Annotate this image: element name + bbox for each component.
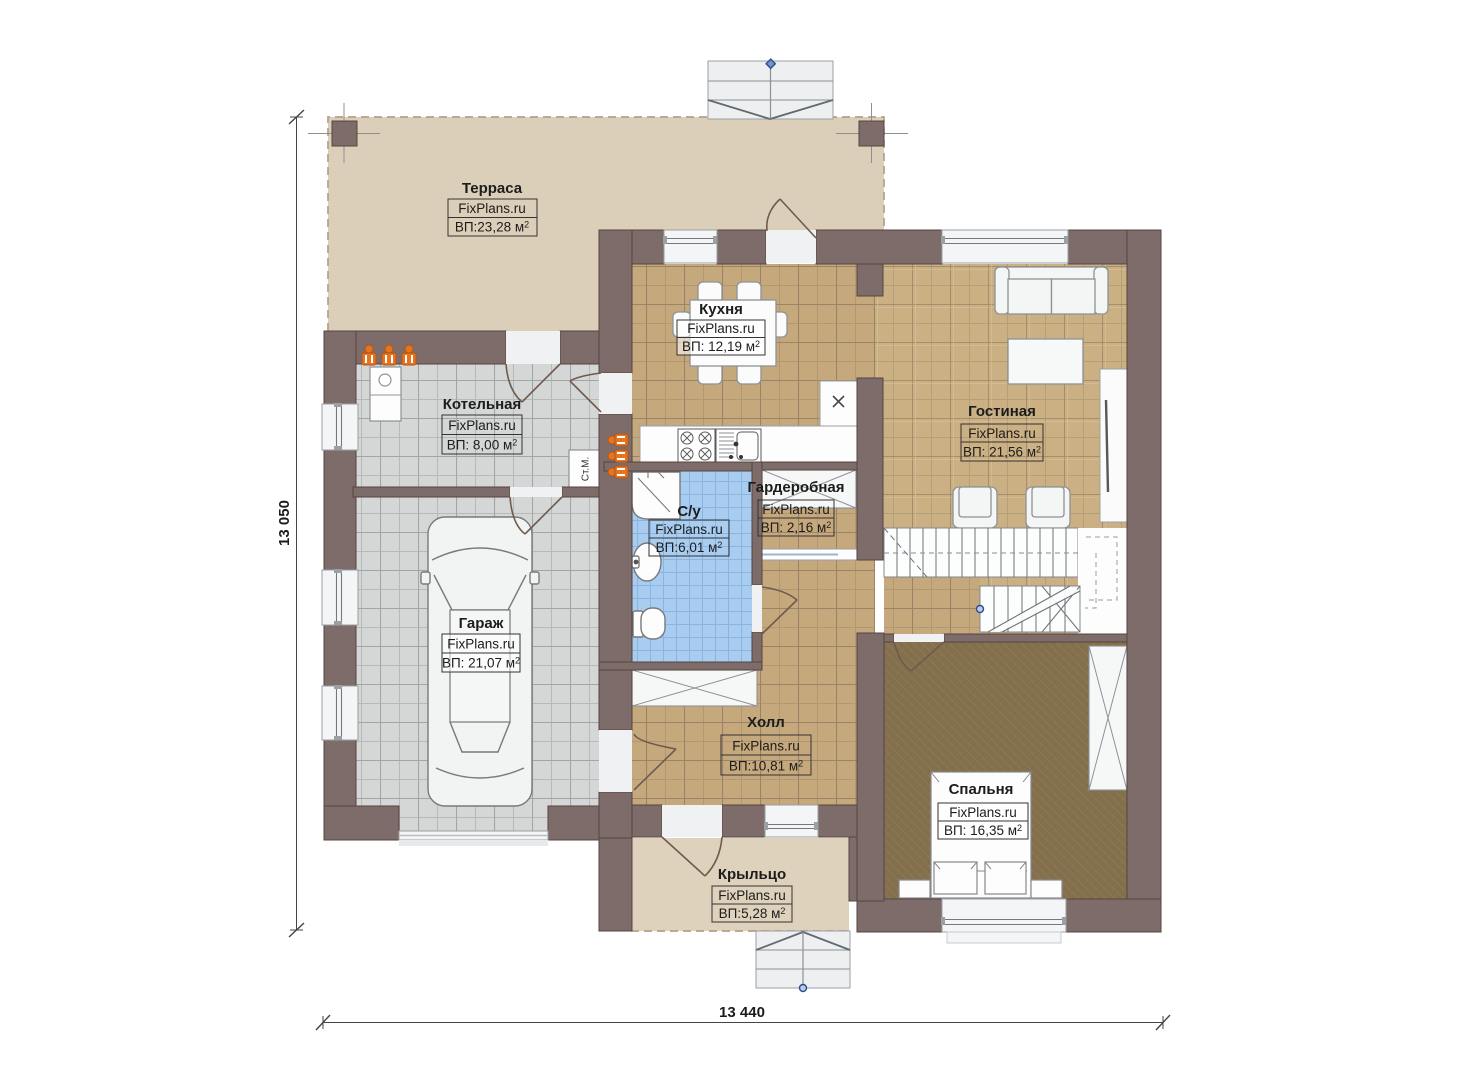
svg-text:Терраса: Терраса	[462, 180, 523, 197]
svg-text:ВП: 2,16 м2: ВП: 2,16 м2	[761, 520, 832, 535]
svg-text:ВП: 21,56 м2: ВП: 21,56 м2	[963, 445, 1041, 460]
svg-text:ВП:10,81 м2: ВП:10,81 м2	[729, 759, 803, 774]
svg-text:Крыльцо: Крыльцо	[718, 866, 786, 883]
svg-text:ВП:23,28 м2: ВП:23,28 м2	[455, 220, 529, 235]
svg-text:ВП: 16,35 м2: ВП: 16,35 м2	[944, 823, 1022, 838]
svg-text:Гостиная: Гостиная	[968, 403, 1036, 420]
svg-text:ВП: 12,19 м2: ВП: 12,19 м2	[682, 339, 760, 354]
svg-text:FixPlans.ru: FixPlans.ru	[732, 739, 800, 754]
svg-text:FixPlans.ru: FixPlans.ru	[687, 321, 755, 336]
svg-text:Котельная: Котельная	[443, 396, 522, 413]
svg-text:FixPlans.ru: FixPlans.ru	[949, 805, 1017, 820]
svg-text:FixPlans.ru: FixPlans.ru	[447, 637, 515, 652]
svg-text:Гараж: Гараж	[459, 615, 504, 632]
svg-text:FixPlans.ru: FixPlans.ru	[458, 201, 526, 216]
svg-text:FixPlans.ru: FixPlans.ru	[762, 502, 830, 517]
svg-text:FixPlans.ru: FixPlans.ru	[448, 418, 516, 433]
svg-text:Ст.М.: Ст.М.	[581, 457, 592, 482]
svg-text:Гардеробная: Гардеробная	[747, 479, 844, 496]
svg-text:ВП: 8,00 м2: ВП: 8,00 м2	[447, 438, 518, 453]
svg-text:Спальня: Спальня	[949, 781, 1014, 798]
svg-text:С/у: С/у	[677, 503, 701, 520]
svg-text:FixPlans.ru: FixPlans.ru	[968, 426, 1036, 441]
svg-text:13 050: 13 050	[276, 500, 293, 546]
svg-text:FixPlans.ru: FixPlans.ru	[718, 888, 786, 903]
svg-text:Кухня: Кухня	[699, 301, 743, 318]
svg-text:FixPlans.ru: FixPlans.ru	[655, 522, 723, 537]
svg-text:ВП: 21,07 м2: ВП: 21,07 м2	[442, 656, 520, 671]
svg-text:13 440: 13 440	[719, 1004, 765, 1021]
svg-text:Холл: Холл	[747, 714, 785, 731]
svg-text:ВП:6,01 м2: ВП:6,01 м2	[656, 540, 723, 555]
svg-text:ВП:5,28 м2: ВП:5,28 м2	[719, 906, 786, 921]
